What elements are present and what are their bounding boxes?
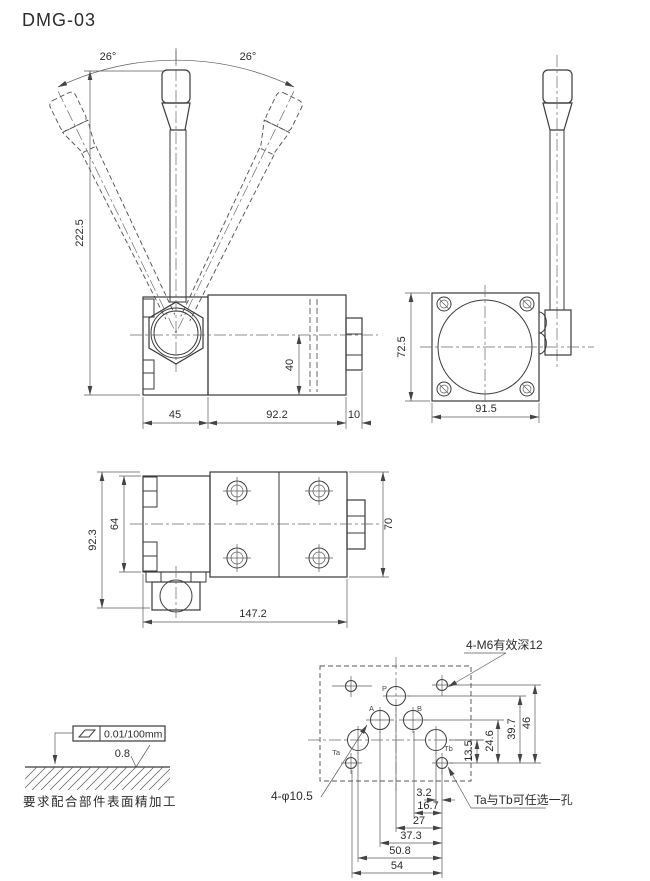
roughness-value: 0.8 (115, 748, 130, 760)
pattern-vertical-dims: 13.5 24.6 39.7 46 (408, 685, 541, 763)
bottom-body (130, 472, 382, 618)
hatching (14, 766, 182, 790)
svg-text:92.3: 92.3 (87, 529, 99, 550)
bolt-hole (437, 297, 451, 311)
svg-text:91.5: 91.5 (475, 403, 496, 415)
bolt-hole (437, 382, 451, 396)
roughness-icon (131, 745, 150, 767)
svg-text:64: 64 (109, 518, 121, 530)
port-label-p: P (382, 684, 387, 693)
technical-drawing: DMG-03 26° 26° (0, 0, 650, 881)
drawing-title: DMG-03 (22, 10, 96, 30)
angle-label-left: 26° (100, 51, 117, 63)
m6-hole (332, 676, 372, 697)
bolt-hole (305, 544, 333, 572)
m6-hole (432, 675, 453, 696)
svg-text:147.2: 147.2 (239, 608, 267, 620)
front-view: 26° 26° 222.5 (45, 48, 378, 429)
bolt-hole (305, 477, 333, 505)
m6-hole (341, 753, 362, 774)
svg-text:13.5: 13.5 (463, 740, 475, 761)
front-body (130, 295, 378, 395)
svg-text:24.6: 24.6 (484, 730, 496, 751)
svg-text:46: 46 (521, 717, 533, 729)
callout-ta-tb: Ta与Tb可任选一孔 (448, 767, 573, 808)
dim-side-width: 91.5 (432, 403, 539, 423)
dim-end-nut: 10 (348, 409, 360, 421)
front-bottom-dims: 45 92.2 10 (143, 372, 370, 429)
svg-text:4-φ10.5: 4-φ10.5 (271, 789, 313, 803)
pattern-horizontal-dims: 3.2 16.7 27 37.3 50.8 54 (352, 707, 455, 878)
port-label-b: B (417, 704, 422, 713)
port-label-tb: Tb (444, 744, 453, 753)
flatness-icon (79, 730, 95, 737)
dim-overall-height: 222.5 (74, 71, 163, 395)
angle-arc (58, 50, 294, 87)
dim-port-offset: 40 (284, 335, 299, 395)
bottom-view: 92.3 64 70 147.2 (87, 472, 395, 628)
bolt-hole (223, 477, 251, 505)
mounting-pattern: P A B Ta Tb 13.5 24.6 39.7 46 (271, 637, 573, 878)
svg-text:72.5: 72.5 (396, 336, 408, 357)
surface-finish-note: 0.01/100mm 0.8 要求配合部件表面精加工 (14, 726, 182, 809)
bolt-hole (520, 382, 534, 396)
svg-text:70: 70 (383, 518, 395, 530)
side-body (420, 285, 594, 412)
svg-text:27: 27 (413, 815, 425, 827)
port-hole-b (399, 707, 427, 733)
dim-body-length: 92.2 (266, 409, 287, 421)
svg-text:39.7: 39.7 (506, 718, 518, 739)
dim-housing-width: 45 (169, 409, 181, 421)
surface-caption: 要求配合部件表面精加工 (23, 794, 177, 809)
angle-label-right: 26° (240, 51, 257, 63)
svg-text:54: 54 (391, 860, 403, 872)
svg-text:40: 40 (284, 359, 296, 371)
callout-port-dia: 4-φ10.5 (271, 725, 367, 803)
dim-body-height: 70 (349, 472, 395, 577)
svg-text:37.3: 37.3 (400, 830, 421, 842)
svg-text:50.8: 50.8 (389, 845, 410, 857)
drawing-sheet: DMG-03 26° 26° (0, 0, 650, 881)
svg-text:4-M6有效深12: 4-M6有效深12 (466, 637, 543, 652)
side-lever (543, 55, 572, 368)
flatness-value: 0.01/100mm (104, 729, 163, 741)
dim-bottom-overall-height: 92.3 (87, 472, 150, 608)
svg-text:222.5: 222.5 (74, 219, 86, 247)
port-label-ta: Ta (332, 748, 341, 757)
lever-center (162, 48, 190, 372)
port-label-a: A (369, 704, 374, 713)
side-view: 72.5 91.5 (396, 55, 594, 423)
svg-text:Ta与Tb可任选一孔: Ta与Tb可任选一孔 (474, 793, 573, 807)
lever-right-dashed (163, 85, 306, 339)
bolt-hole (223, 544, 251, 572)
svg-text:3.2: 3.2 (416, 787, 431, 799)
port-hole-p (383, 687, 410, 706)
bolt-hole (520, 297, 534, 311)
svg-text:16.7: 16.7 (417, 800, 438, 812)
callout-m6: 4-M6有效深12 (448, 637, 543, 687)
lever-left-dashed (45, 85, 188, 339)
